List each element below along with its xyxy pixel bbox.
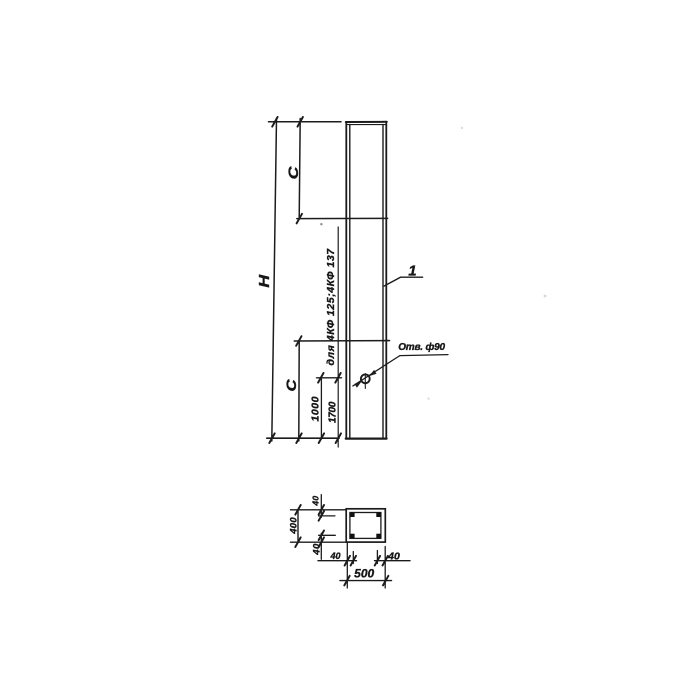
- svg-text:Отв. ф90: Отв. ф90: [398, 341, 445, 353]
- svg-text:40: 40: [311, 496, 321, 507]
- svg-text:для 4КФ 125;4КФ 137: для 4КФ 125;4КФ 137: [325, 248, 337, 366]
- svg-text:400: 400: [289, 517, 300, 535]
- svg-text:1700: 1700: [327, 401, 338, 423]
- svg-text:40: 40: [312, 543, 323, 556]
- svg-text:40: 40: [329, 551, 340, 561]
- svg-text:500: 500: [354, 567, 374, 581]
- svg-text:C: C: [284, 379, 299, 392]
- svg-text:1: 1: [408, 263, 416, 280]
- svg-text:H: H: [255, 274, 272, 288]
- svg-text:C: C: [287, 166, 302, 179]
- svg-text:40: 40: [387, 550, 400, 562]
- svg-text:1000: 1000: [310, 396, 322, 422]
